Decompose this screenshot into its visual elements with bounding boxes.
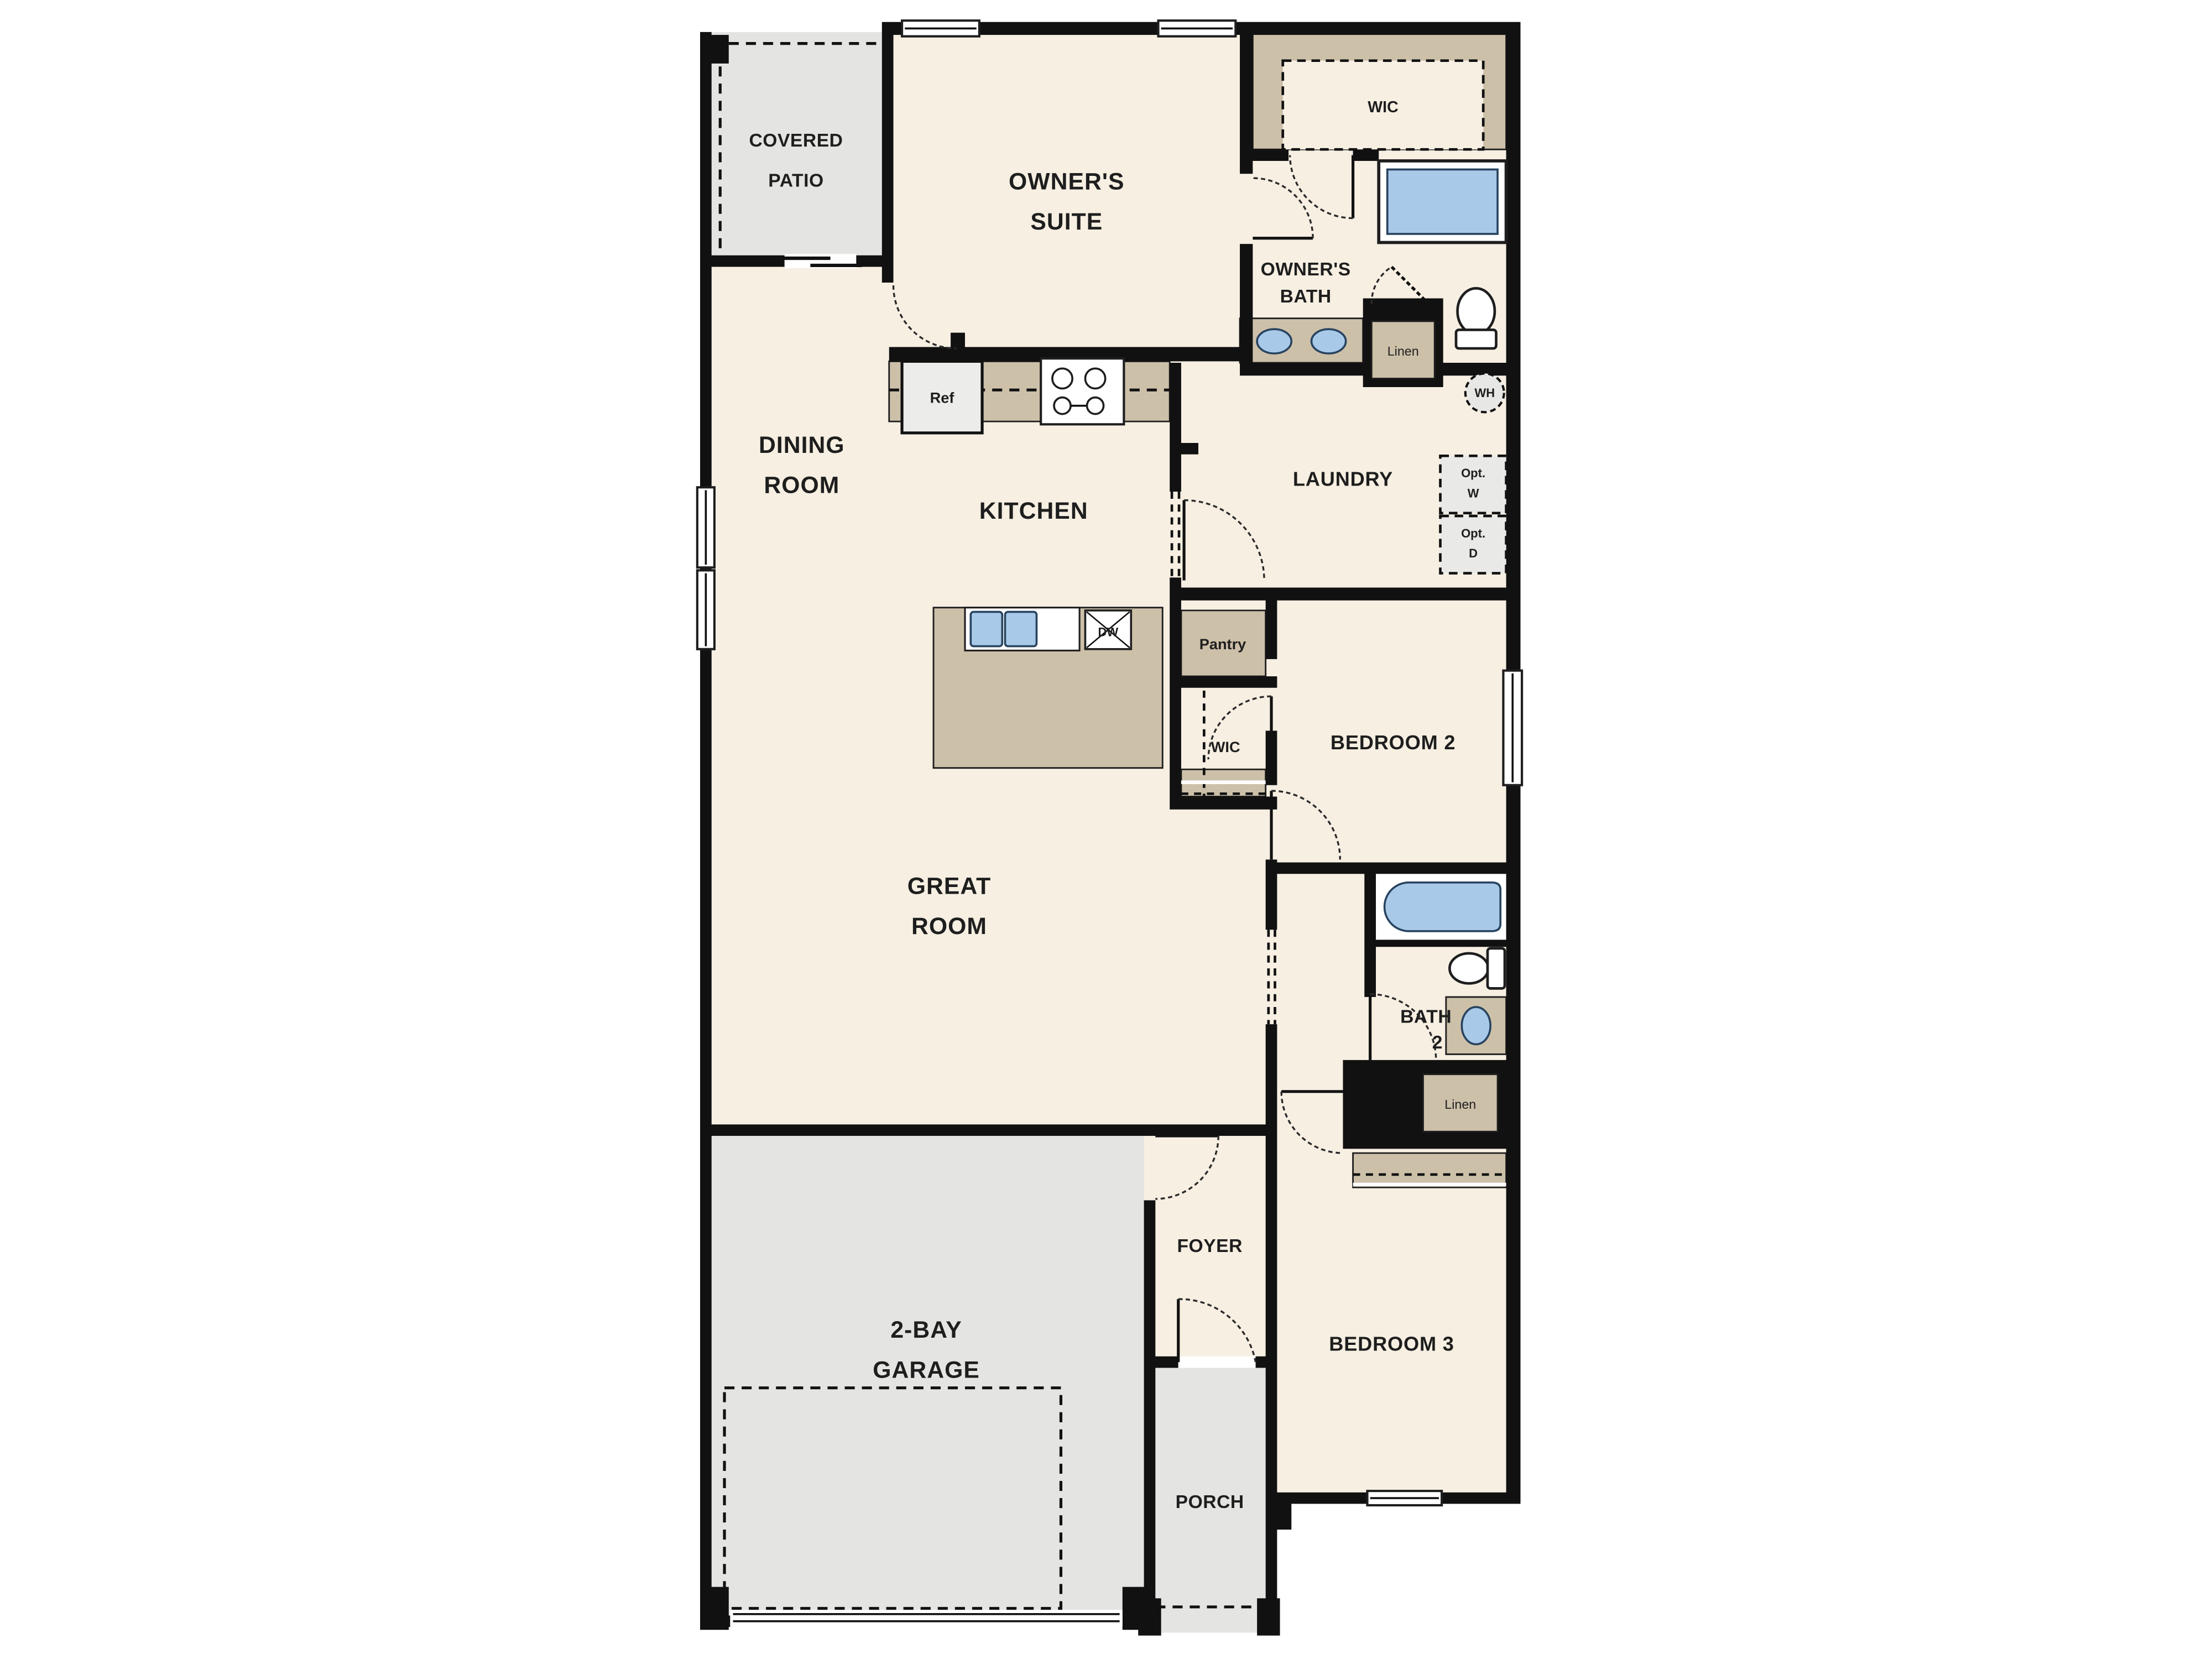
- bedroom3-label: BEDROOM 3: [1329, 1332, 1454, 1355]
- opt-d-line2: D: [1469, 546, 1478, 560]
- garage-label-2: GARAGE: [873, 1357, 980, 1384]
- floor-plan-page: Ref DW WH Opt. W: [0, 0, 2212, 1659]
- linen-owner-label: Linen: [1387, 344, 1419, 358]
- ref-label: Ref: [930, 389, 955, 406]
- owners-bath-label-1: OWNER'S: [1261, 259, 1351, 280]
- bath2-label-2: 2: [1432, 1032, 1443, 1053]
- washer-option-box: Opt. W: [1441, 456, 1506, 513]
- opt-d-line1: Opt.: [1461, 526, 1485, 540]
- garage-label-1: 2-BAY: [890, 1317, 962, 1343]
- great-room-label-2: ROOM: [911, 913, 987, 940]
- owners-toilet-fixture: [1456, 288, 1496, 348]
- front-door-opening: [1178, 1357, 1256, 1368]
- linen-bath2-label: Linen: [1444, 1097, 1476, 1112]
- sliding-patio-door: [779, 254, 862, 268]
- wic-master-label: WIC: [1368, 98, 1398, 116]
- covered-patio-label-1: COVERED: [749, 131, 843, 151]
- bath2-sink-fixture: [1462, 1007, 1490, 1044]
- dining-label-2: ROOM: [764, 472, 839, 499]
- covered-patio-label-2: PATIO: [768, 171, 823, 191]
- owners-bath-label-2: BATH: [1280, 286, 1332, 307]
- laundry-label: LAUNDRY: [1293, 468, 1393, 491]
- garage-door: [730, 1610, 1122, 1625]
- pantry-label: Pantry: [1199, 635, 1246, 653]
- dryer-option-box: Opt. D: [1441, 516, 1506, 573]
- great-room-label-1: GREAT: [907, 873, 991, 900]
- water-heater-symbol: WH: [1465, 373, 1504, 412]
- opt-w-line1: Opt.: [1461, 466, 1485, 480]
- owners-suite-label-1: OWNER'S: [1009, 169, 1125, 195]
- wh-label: WH: [1474, 386, 1495, 400]
- porch-label: PORCH: [1176, 1492, 1244, 1512]
- island-sink-fixture: [965, 608, 1079, 651]
- dishwasher-fixture: DW: [1085, 611, 1131, 649]
- foyer-label: FOYER: [1177, 1236, 1242, 1256]
- dining-label-1: DINING: [759, 432, 845, 458]
- refrigerator-fixture: Ref: [902, 361, 982, 432]
- bathtub-fixture: [1385, 883, 1501, 931]
- kitchen-label: KITCHEN: [979, 498, 1088, 524]
- bedroom2-label: BEDROOM 2: [1331, 731, 1455, 754]
- shower-fixture: [1379, 161, 1506, 243]
- wic-hall-label: WIC: [1211, 738, 1240, 755]
- bath2-label-1: BATH: [1400, 1007, 1452, 1027]
- floor-plan-drawing: Ref DW WH Opt. W: [0, 0, 2212, 1659]
- range-fixture: [1041, 358, 1124, 424]
- opt-w-line2: W: [1468, 486, 1479, 500]
- dw-label: DW: [1098, 625, 1119, 639]
- owners-suite-label-2: SUITE: [1030, 208, 1103, 235]
